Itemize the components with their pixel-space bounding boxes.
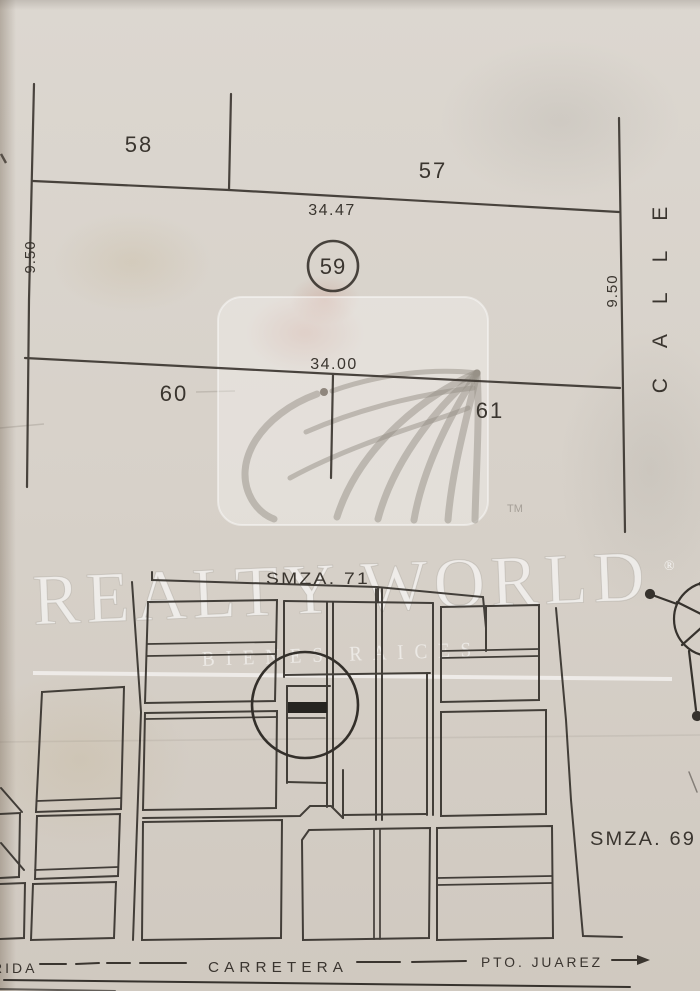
- lot-60-label: 60: [160, 381, 188, 406]
- lot-59-label: 59: [320, 254, 346, 279]
- dimension-bottom-label: 34.00: [310, 356, 358, 373]
- dimension-left-label: 9.50: [22, 240, 39, 273]
- road-merida-label: RIDA: [0, 960, 37, 976]
- plat-drawing-canvas: TM REALTY WORLD ® BIENES RAICES 58 57 34…: [0, 0, 700, 991]
- dimension-right-label: 9.50: [604, 274, 621, 307]
- highlighted-lot-marker: [288, 702, 327, 713]
- road-pto-juarez-label: PTO. JUAREZ: [481, 954, 603, 970]
- road-carretera-label: CARRETERA: [208, 959, 348, 976]
- lot-61-label: 61: [476, 398, 504, 423]
- lot-57-label: 57: [419, 158, 447, 183]
- scanned-plat-document: TM REALTY WORLD ® BIENES RAICES 58 57 34…: [0, 0, 700, 991]
- dimension-top-label: 34.47: [308, 202, 356, 219]
- smza-69-label: SMZA. 69: [590, 829, 696, 850]
- trademark-symbol: TM: [507, 503, 523, 515]
- street-name-calle-label: CALLE: [649, 177, 672, 394]
- registered-symbol: ®: [664, 559, 675, 574]
- lot-58-label: 58: [125, 132, 153, 157]
- smza-71-label: SMZA. 71: [266, 569, 370, 588]
- survey-point-dot: [320, 388, 328, 396]
